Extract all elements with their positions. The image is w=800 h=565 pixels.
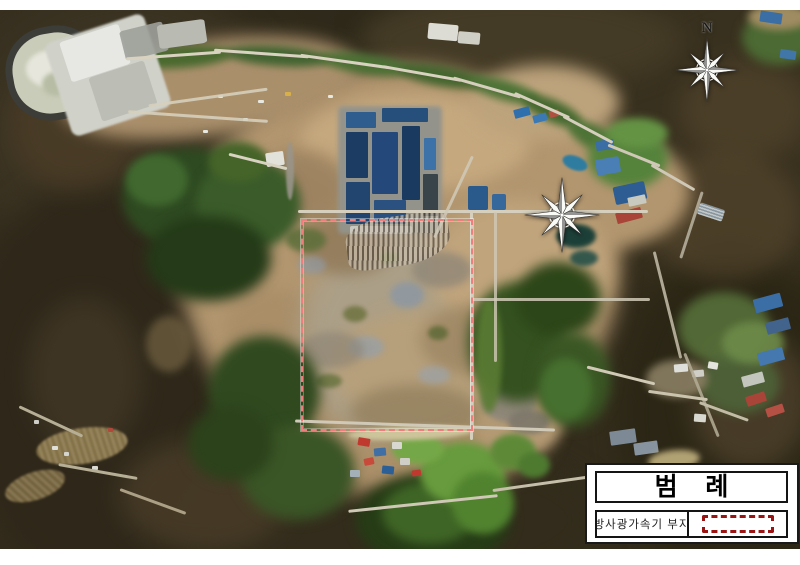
warehouse <box>609 428 637 445</box>
white-roof-building <box>674 363 689 372</box>
road <box>58 463 137 479</box>
blue-roof-house <box>374 447 387 456</box>
cleared-ground <box>470 65 620 140</box>
white-roof-building <box>458 31 481 45</box>
gravel-mound <box>508 410 550 434</box>
white-roof-house <box>52 446 58 450</box>
road <box>453 76 521 98</box>
red-roof-house <box>412 469 422 476</box>
blue-roof-building <box>346 182 370 224</box>
cleared-ground <box>300 95 530 190</box>
compass-rose-icon <box>523 176 601 254</box>
oval-track <box>0 18 109 127</box>
forest-patch <box>188 406 273 481</box>
road <box>19 405 83 437</box>
blue-roof-building <box>532 112 548 123</box>
forest-patch <box>382 482 477 544</box>
legend: 범 례 방사광가속기 부지 <box>585 463 799 544</box>
road <box>300 54 390 69</box>
field <box>748 10 800 30</box>
white-roof-house <box>92 466 98 470</box>
forest-patch <box>536 332 611 427</box>
road <box>699 401 749 421</box>
forest-patch <box>122 148 257 248</box>
terraced-field <box>722 322 784 364</box>
white-roof-building <box>694 414 707 423</box>
industrial-building <box>119 21 169 61</box>
road <box>683 353 719 438</box>
site-boundary-dashed-rect <box>301 219 473 431</box>
road <box>587 366 656 385</box>
green-belt <box>317 47 414 80</box>
green-belt <box>518 88 586 135</box>
forest-patch <box>360 10 680 90</box>
track-infield <box>42 72 72 96</box>
cleared-ground <box>470 380 565 455</box>
forest-patch <box>468 282 568 402</box>
green-belt <box>563 113 627 162</box>
field <box>392 434 444 464</box>
hillside <box>120 440 290 549</box>
road <box>120 488 187 514</box>
vehicle <box>258 100 264 103</box>
green-belt <box>397 59 484 93</box>
cleared-ground <box>250 150 350 225</box>
hillside <box>690 330 800 470</box>
vehicle <box>203 130 208 133</box>
hillside <box>30 300 140 450</box>
field <box>742 10 800 65</box>
forest-patch <box>146 216 271 301</box>
industrial-building <box>88 60 157 122</box>
legend-row: 방사광가속기 부지 <box>595 510 788 538</box>
road <box>494 212 497 362</box>
road <box>679 191 703 259</box>
road <box>651 164 696 192</box>
white-roof-house <box>64 452 69 456</box>
white-roof-building <box>627 194 646 207</box>
red-roof-building <box>615 207 643 224</box>
green-belt <box>465 70 543 110</box>
white-roof-building <box>265 151 285 167</box>
hillside <box>650 150 800 280</box>
white-roof-building <box>707 361 718 370</box>
terraced-field <box>1 463 69 509</box>
blue-roof-building <box>346 112 376 128</box>
blue-roof-building <box>513 106 531 119</box>
forest-patch <box>0 180 220 549</box>
road <box>229 153 288 170</box>
green-belt <box>224 42 330 69</box>
forest-patch <box>540 358 592 420</box>
industrial-building <box>43 12 172 137</box>
road <box>653 251 683 358</box>
greenhouse-rows <box>697 202 725 221</box>
terraced-field <box>678 292 770 364</box>
vehicle <box>218 95 223 98</box>
lawn <box>608 118 668 148</box>
road <box>148 88 267 107</box>
forest-patch <box>356 472 511 549</box>
blue-roof-building <box>382 108 428 122</box>
dark-roof-building <box>423 174 438 216</box>
retaining-wall <box>286 142 294 200</box>
legend-symbol-cell <box>689 512 786 536</box>
vehicle <box>285 92 291 96</box>
white-roof-building <box>741 371 765 387</box>
field <box>518 452 550 478</box>
field <box>420 442 505 504</box>
legend-item-label: 방사광가속기 부지 <box>597 512 689 536</box>
industrial-building <box>59 23 131 82</box>
forest-patch <box>516 262 601 337</box>
blue-roof-building <box>402 126 420 200</box>
red-roof-house <box>357 437 370 447</box>
white-roof-building <box>427 23 458 42</box>
forest-patch <box>208 142 268 182</box>
vehicle <box>243 118 248 121</box>
blue-roof-building <box>765 317 791 335</box>
hillside <box>10 60 140 190</box>
road <box>563 115 614 144</box>
compass-rose-icon <box>674 37 740 103</box>
white-roof-building <box>692 369 705 377</box>
grass-slope <box>476 298 502 413</box>
industrial-building <box>157 19 208 49</box>
red-roof-building <box>765 403 785 417</box>
blue-roof-building <box>346 132 368 178</box>
white-roof-house <box>392 442 402 449</box>
track-infield <box>26 50 78 88</box>
north-label: N <box>674 19 740 37</box>
blue-roof-building <box>492 194 506 210</box>
cleared-ground <box>55 20 365 156</box>
road <box>382 65 461 82</box>
red-roof-building <box>745 391 767 407</box>
road <box>126 51 221 61</box>
blue-roof-building <box>759 11 782 25</box>
forest-patch <box>126 154 188 206</box>
road <box>648 390 708 401</box>
forest-patch <box>180 440 600 549</box>
red-roof-house <box>108 428 113 432</box>
blue-roof-building <box>757 347 785 366</box>
white-roof-house <box>34 420 39 424</box>
terraced-field <box>34 422 130 470</box>
field <box>490 434 536 470</box>
gravel-mound <box>482 382 536 422</box>
compass-rose-north: N <box>674 19 740 105</box>
terraced-field <box>146 316 192 372</box>
blue-roof-building <box>372 132 398 194</box>
blue-roof-building <box>595 156 621 176</box>
road <box>514 92 570 119</box>
green-belt <box>127 42 233 71</box>
blue-roof-building <box>595 139 614 151</box>
road <box>128 110 268 122</box>
terraced-field <box>698 352 780 414</box>
blue-roof-building <box>753 293 784 314</box>
white-roof-house <box>400 458 410 465</box>
forest-patch <box>0 10 290 270</box>
road <box>348 494 497 513</box>
blue-roof-building <box>612 181 647 205</box>
construction-pad <box>338 106 442 234</box>
forest-patch <box>240 425 355 520</box>
warehouse <box>633 440 658 455</box>
legend-title: 범 례 <box>595 471 788 503</box>
legend-symbol-dashed-rect <box>702 515 774 533</box>
blue-roof-building <box>424 138 436 170</box>
blue-roof-building <box>468 186 488 210</box>
pond <box>560 152 589 174</box>
road <box>214 49 309 59</box>
legend-title-text: 범 례 <box>655 475 729 500</box>
vehicle <box>328 95 333 98</box>
road <box>607 144 660 168</box>
forest-patch <box>196 158 301 250</box>
blue-roof-building <box>779 49 796 60</box>
gray-roof-house <box>350 470 360 477</box>
road <box>470 298 650 301</box>
red-roof-building <box>548 109 559 118</box>
village-clearing <box>646 360 708 398</box>
blue-roof-house <box>382 465 395 474</box>
red-roof-house <box>363 457 374 466</box>
field <box>452 472 514 534</box>
